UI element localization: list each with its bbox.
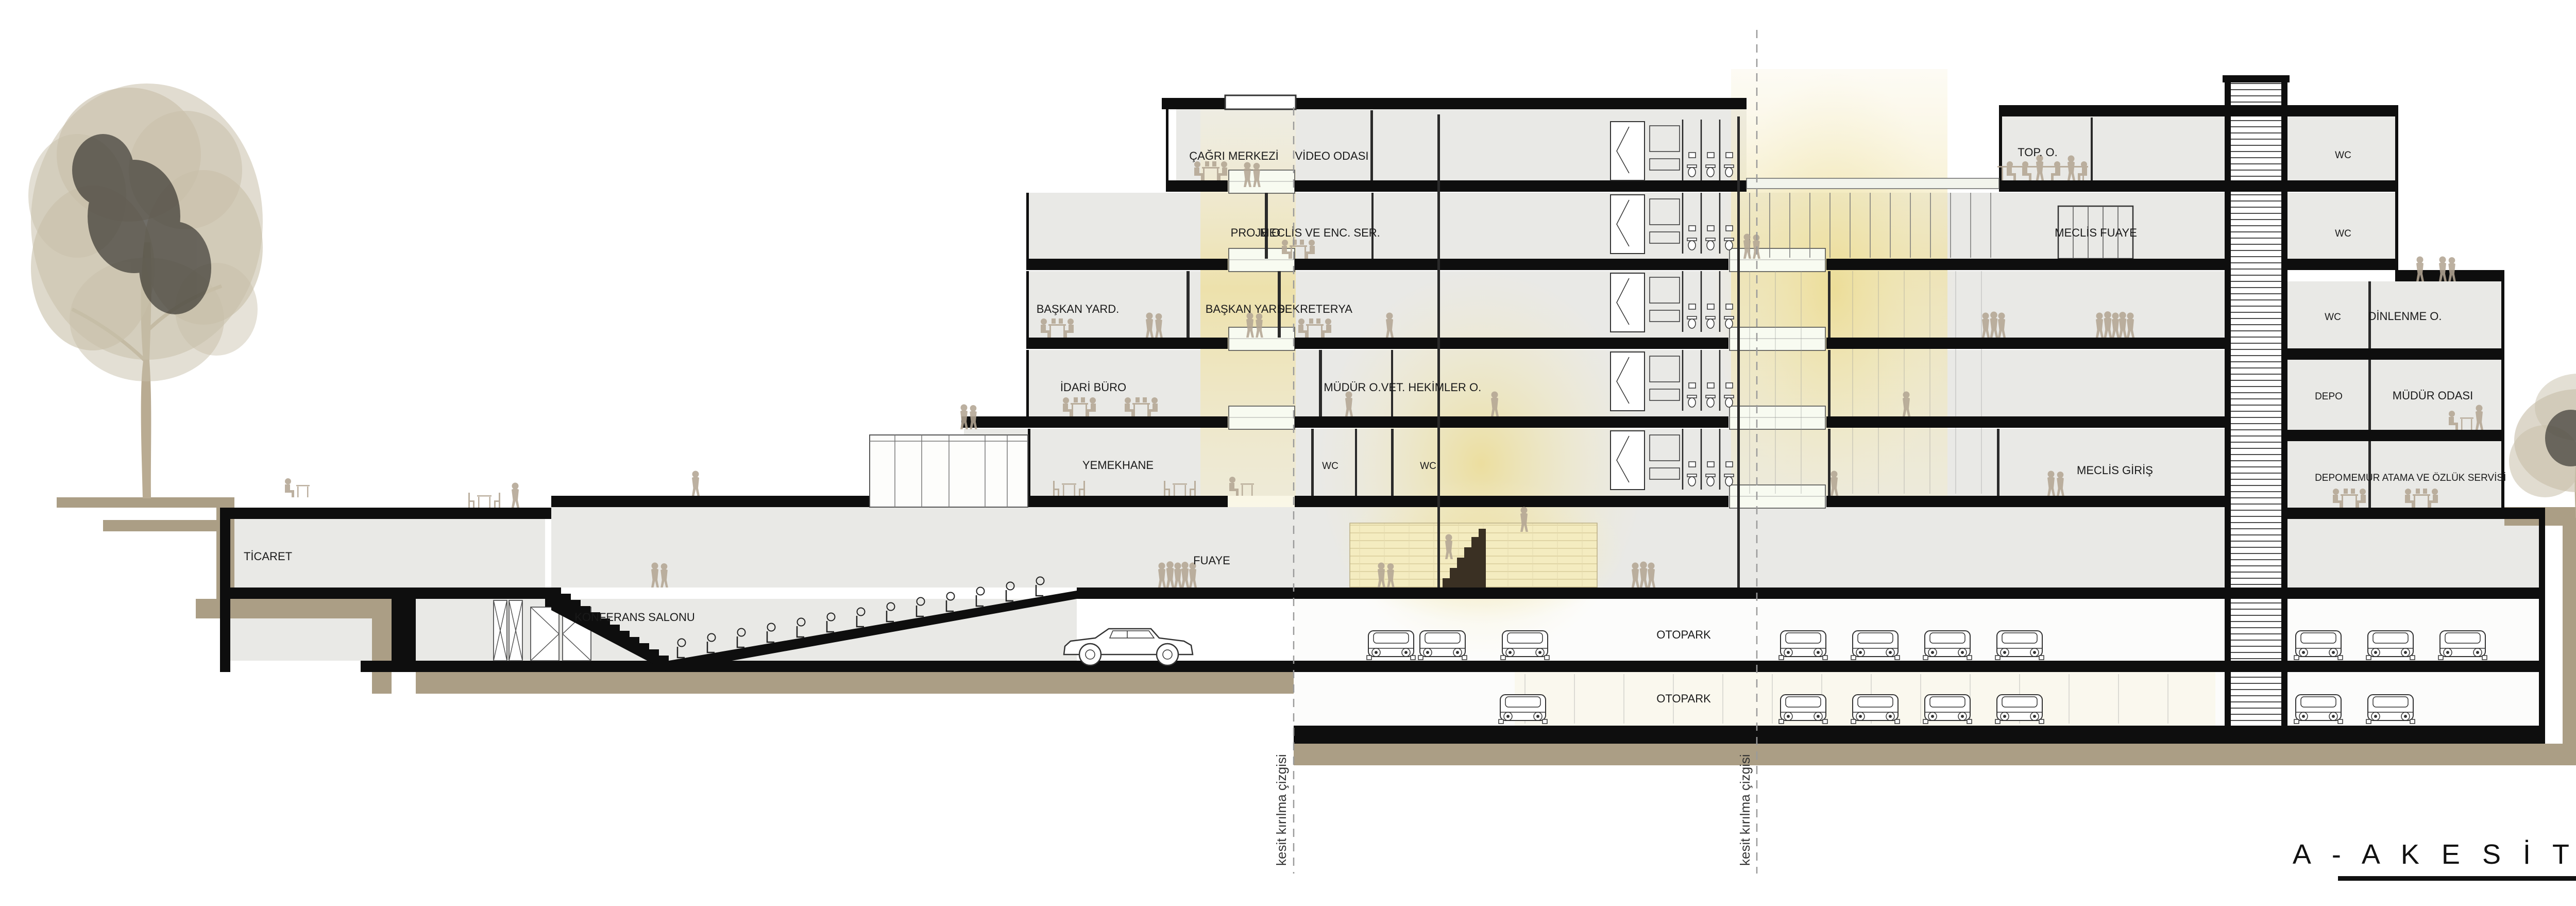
- room-label: MECLİS GİRİŞ: [2077, 464, 2153, 477]
- architectural-section-drawing: ÇAĞRI MERKEZİ VİDEO ODASI TOP. O. WC PRO…: [0, 0, 2576, 906]
- room-label: WC: [1322, 461, 1338, 472]
- room-label: İDARİ BÜRO: [1060, 381, 1126, 394]
- room-label: FUAYE: [1193, 554, 1230, 567]
- room-label: BAŞKAN YARD.: [1037, 303, 1120, 315]
- drawing-title: A - A K E S İ T 1 / 2 0 0: [2293, 839, 2576, 881]
- room-label: WC: [2325, 312, 2341, 323]
- room-label: YEMEKHANE: [1082, 459, 1154, 472]
- room-label: SEKRETERYA: [1277, 303, 1352, 315]
- room-label: DEPO: [2315, 391, 2343, 402]
- room-label: VET. HEKİMLER O.: [1381, 381, 1481, 394]
- room-label: TİCARET: [244, 550, 292, 563]
- right-tree: [2509, 374, 2576, 518]
- room-label: DİNLENME O.: [2368, 310, 2442, 323]
- stair-shaft-hatch: [2231, 81, 2281, 726]
- roof-skylight-box: [1225, 95, 1296, 109]
- room-label: BAŞKAN YARD.: [1206, 303, 1289, 315]
- room-label: WC: [1420, 461, 1436, 472]
- room-label: DEPO: [2315, 473, 2343, 483]
- room-label: MEMUR ATAMA VE ÖZLÜK SERVİSİ: [2343, 473, 2506, 483]
- amphitheatre-stair: [1350, 523, 1597, 588]
- room-label: OTOPARK: [1656, 692, 1711, 705]
- room-label: MECLİS FUAYE: [2055, 226, 2137, 239]
- room-label: TOP. O.: [2018, 146, 2057, 159]
- section-break-label: kesit kırılma çizgisi: [1274, 754, 1289, 866]
- room-label: ÇAĞRI MERKEZİ: [1189, 149, 1279, 162]
- room-label: WC: [2335, 228, 2351, 239]
- room-label: MÜDÜR O.: [1324, 381, 1381, 394]
- section-break-label: kesit kırılma çizgisi: [1737, 754, 1753, 866]
- title-text: A - A K E S İ T 1 / 2 0 0: [2293, 839, 2576, 870]
- room-label: MÜDÜR ODASI: [2393, 389, 2473, 402]
- car-side-icon: [1064, 629, 1193, 665]
- room-label: KONFERANS SALONU: [574, 611, 695, 624]
- glass-roof-band: [1747, 178, 1999, 189]
- room-label: VİDEO ODASI: [1295, 149, 1368, 162]
- title-underline: [2338, 876, 2576, 881]
- left-tree: [28, 83, 263, 498]
- room-label: MECLİS VE ENC. SER.: [1260, 226, 1380, 239]
- room-label: OTOPARK: [1656, 628, 1711, 641]
- room-label: WC: [2335, 150, 2351, 161]
